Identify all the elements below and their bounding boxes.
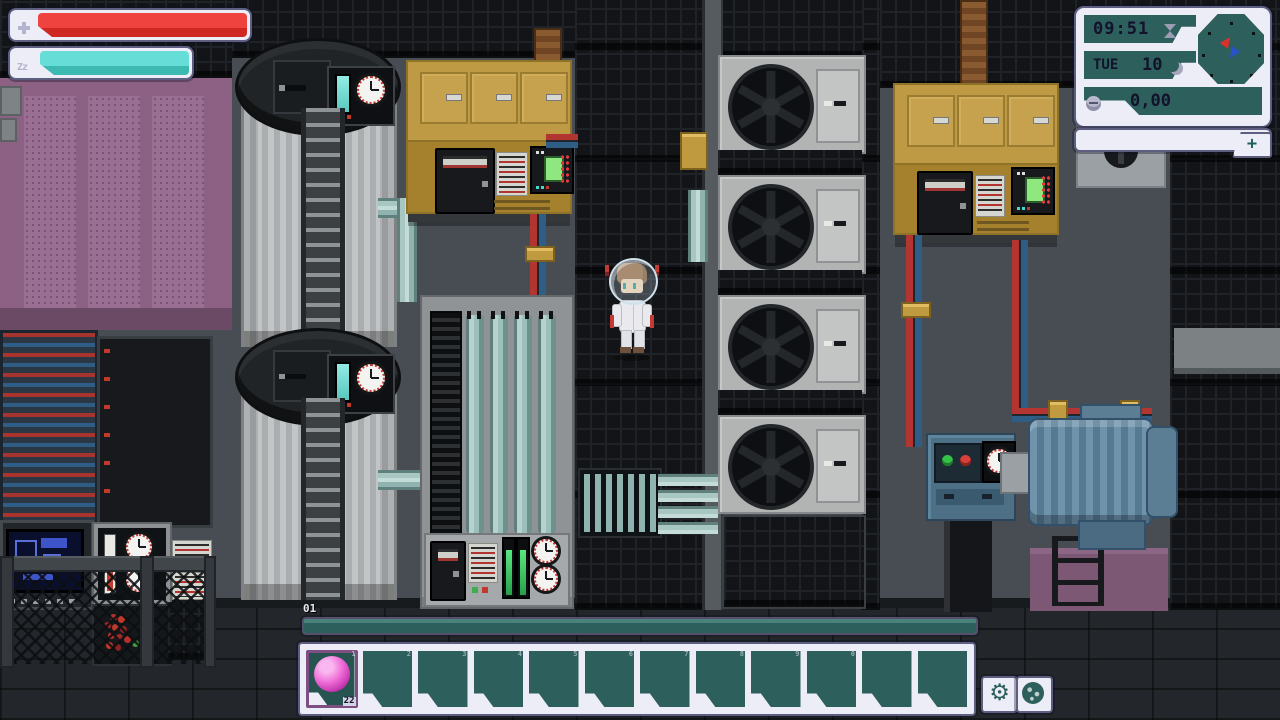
slot-background <box>363 651 413 707</box>
label-plate <box>496 152 528 196</box>
radar-dots <box>1230 22 1233 25</box>
item-count: 22 <box>343 697 356 706</box>
health-fill <box>38 13 247 37</box>
slot-background <box>529 651 579 707</box>
slot-background <box>918 651 968 707</box>
motor-bracket-bottom <box>1078 520 1146 550</box>
power-pipes <box>546 134 578 148</box>
electric-motor <box>1028 418 1154 526</box>
expand-bar: + <box>1074 128 1272 152</box>
pipe-clamp <box>901 302 931 318</box>
hotbar: 122234567890 <box>298 642 976 716</box>
clock-panel: 09:51 TUE 10 0,00 <box>1074 6 1272 128</box>
money-bar: 0,00 <box>1084 87 1262 115</box>
vent-band <box>718 270 862 295</box>
tank-hatch <box>273 60 331 114</box>
fan-control-panel <box>816 69 860 143</box>
character-shadow <box>614 354 650 361</box>
item-pink-orb[interactable] <box>314 656 350 692</box>
mauve-wall-panel <box>0 78 232 330</box>
radiator-column <box>430 311 462 537</box>
slot-background <box>807 651 857 707</box>
coolant-pipe <box>658 506 718 518</box>
access-hatch <box>907 95 955 147</box>
indicator-lights <box>104 349 110 509</box>
expand-plus-button[interactable]: + <box>1232 132 1272 158</box>
tank-ladder <box>301 398 345 600</box>
community-button[interactable] <box>1016 676 1053 713</box>
hotbar-slot-12[interactable] <box>917 650 969 708</box>
fan-bottom-grate <box>722 515 866 609</box>
slot-background <box>418 651 468 707</box>
button-panel <box>934 443 982 483</box>
grate-top-fan <box>718 0 880 58</box>
generator-chimney <box>960 0 988 90</box>
motor-end-cap <box>1146 426 1178 518</box>
screen-graphic <box>41 538 67 548</box>
helmet-antenna <box>605 265 609 276</box>
status-lights <box>1017 207 1020 210</box>
tank-hatch <box>273 350 331 402</box>
coolant-pipe <box>658 474 718 486</box>
label-plate <box>975 175 1005 217</box>
coolant-tube <box>490 315 508 533</box>
power-pipes <box>906 235 922 447</box>
fan-grille <box>728 184 814 270</box>
fence-rail <box>0 556 212 572</box>
status-lights <box>536 186 539 189</box>
moon-icon <box>1170 62 1183 75</box>
slot-background <box>862 651 912 707</box>
health-cross-icon <box>18 22 30 34</box>
level-bar-green <box>502 537 516 599</box>
vent-strip <box>88 96 140 308</box>
machine-buttons <box>472 587 492 593</box>
dial-gauge <box>534 567 558 591</box>
level-bar <box>335 362 351 402</box>
vent-slats <box>977 221 1029 232</box>
sleep-icon: Zz <box>17 62 27 73</box>
gear-icon: ⚙ <box>989 680 1010 706</box>
slot-number: 7 <box>684 650 688 658</box>
power-pipes <box>1012 240 1028 416</box>
dial-gauge <box>357 364 385 392</box>
vent-strip <box>152 96 204 308</box>
status-lights <box>536 151 539 154</box>
hotbar-slot-7[interactable]: 7 <box>639 650 691 708</box>
hotbar-slot-10[interactable]: 0 <box>806 650 858 708</box>
slot-background <box>474 651 524 707</box>
wall-tab <box>0 86 22 116</box>
pipe-bundle <box>584 474 656 532</box>
hotbar-slot-4[interactable]: 4 <box>473 650 525 708</box>
slot-background <box>640 651 690 707</box>
fan-grille <box>728 304 814 390</box>
pedestal-slots <box>944 494 954 499</box>
pipe-junction-box <box>578 468 662 538</box>
generator-screen <box>530 146 574 194</box>
level-label: 01 <box>303 602 316 615</box>
generator-right <box>893 83 1059 235</box>
vent-slats <box>494 200 550 211</box>
coin-icon <box>1086 96 1101 111</box>
tank-ladder <box>301 108 345 346</box>
dial-gauge <box>357 76 385 104</box>
day-display: TUE <box>1093 57 1118 73</box>
fan-unit-1 <box>718 55 866 154</box>
pedestal-post <box>944 512 992 612</box>
boot <box>620 347 631 353</box>
slot-background <box>585 651 635 707</box>
label-plate <box>468 543 498 583</box>
slot-number: 5 <box>573 650 577 658</box>
slot-background <box>696 651 746 707</box>
slot-number: 4 <box>518 650 522 658</box>
coolant-pipe <box>688 190 708 262</box>
coolant-tube <box>514 315 532 533</box>
red-button <box>960 455 971 466</box>
coolant-pipe <box>658 522 718 534</box>
settings-button[interactable]: ⚙ <box>981 676 1018 713</box>
hotbar-slot-3[interactable]: 3 <box>417 650 469 708</box>
panel-shadow <box>0 308 232 330</box>
vent-band <box>718 150 862 175</box>
fence-post <box>140 556 154 668</box>
coolant-pipe <box>658 490 718 502</box>
access-hatch <box>520 72 568 124</box>
fence-mesh <box>0 566 212 664</box>
time-bar: 09:51 <box>1084 15 1196 43</box>
bubble-helmet <box>609 258 658 305</box>
level-bar-green <box>516 537 530 599</box>
vent-band <box>718 390 862 415</box>
access-hatch <box>1007 95 1055 147</box>
xp-fill <box>304 619 976 633</box>
pipe-clamp <box>525 246 555 262</box>
game-screen: Zz 09:51 TUE 10 0,00 + 01 122234567890 ⚙ <box>0 0 1280 720</box>
coolant-tube <box>466 315 484 533</box>
hotbar-slot-5[interactable]: 5 <box>528 650 580 708</box>
fan-control-panel <box>816 189 860 263</box>
slot-number: 8 <box>740 650 744 658</box>
energy-bar: Zz <box>8 46 194 80</box>
slot-number: 6 <box>629 650 633 658</box>
fan-unit-3 <box>718 295 866 394</box>
hotbar-slot-1[interactable]: 122 <box>306 650 358 708</box>
pedestal-lower <box>936 489 1004 505</box>
hotbar-slot-6[interactable]: 6 <box>584 650 636 708</box>
money-display: 0,00 <box>1130 91 1171 111</box>
health-bar <box>8 8 252 42</box>
fan-grille <box>728 64 814 150</box>
arm-stripe <box>610 315 614 328</box>
machine-door <box>430 541 466 601</box>
generator-screen <box>1011 167 1055 215</box>
hotbar-slot-11[interactable] <box>861 650 913 708</box>
machine-control-section <box>424 533 570 607</box>
boot <box>633 347 644 353</box>
slot-number: 9 <box>795 650 799 658</box>
fence-post <box>0 556 14 668</box>
access-hatch <box>957 95 1005 147</box>
wall-shelf <box>1174 328 1280 374</box>
dial-gauge <box>534 539 558 563</box>
xp-bar <box>302 617 978 635</box>
green-button <box>942 455 953 466</box>
center-machine <box>420 295 574 609</box>
status-lights <box>1017 172 1020 175</box>
pipe-coil-panel <box>0 330 98 528</box>
fan-unit-4 <box>718 415 866 514</box>
fan-unit-2 <box>718 175 866 274</box>
dark-rack-panel <box>97 336 213 528</box>
slot-background <box>751 651 801 707</box>
wall-tab <box>0 118 17 142</box>
coolant-pipe <box>378 470 424 490</box>
generator-door <box>435 148 495 214</box>
pipe-clamp <box>680 132 708 170</box>
vent-strip <box>24 96 76 308</box>
fan-control-panel <box>816 309 860 383</box>
slot-number: 2 <box>407 650 411 658</box>
fan-control-panel <box>816 429 860 503</box>
coolant-tube <box>538 315 556 533</box>
hotbar-slot-8[interactable]: 8 <box>695 650 747 708</box>
fence-post <box>204 556 216 668</box>
emblem-icon <box>1022 682 1044 704</box>
time-display: 09:51 <box>1093 19 1149 39</box>
access-hatch <box>420 72 468 124</box>
slot-number: 0 <box>851 650 855 658</box>
slot-number: 3 <box>462 650 466 658</box>
player-character <box>604 258 660 362</box>
arm-stripe <box>650 315 654 328</box>
radar <box>1198 14 1264 84</box>
generator-door <box>917 171 973 235</box>
date-display: 10 <box>1142 55 1162 75</box>
slot-number: 1 <box>351 650 355 658</box>
hotbar-slot-2[interactable]: 2 <box>362 650 414 708</box>
energy-fill <box>40 51 189 75</box>
fan-grille <box>728 424 814 510</box>
access-hatch <box>470 72 518 124</box>
hotbar-slot-9[interactable]: 9 <box>750 650 802 708</box>
hourglass-icon <box>1164 24 1176 38</box>
